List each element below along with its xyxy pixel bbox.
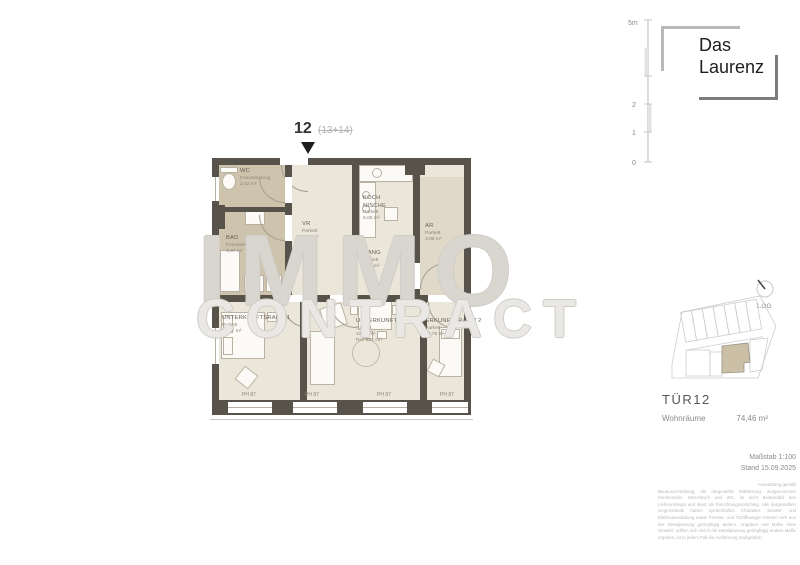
scale-bar: 5m 2 1 0 (624, 12, 658, 170)
room-name: BAD (226, 235, 239, 241)
window (293, 402, 337, 413)
scale-5m-label: 5m (628, 20, 638, 27)
floorplan-page: 12 (13+14) (0, 0, 800, 565)
room-area: 6,05 m² (363, 216, 397, 222)
door-opening (413, 263, 420, 289)
door-opening (428, 295, 454, 302)
highlighted-unit (722, 343, 750, 373)
logo-line1: Das (699, 34, 764, 56)
room-area: 3,08 m² (363, 264, 381, 270)
room-floor: Feinsteinzeug (240, 176, 270, 182)
wall (464, 158, 471, 415)
room-label-unterkunftsraum2: UNTERKUNFTSRAUM 2 Parkett 10,75 m² (413, 318, 481, 338)
wall (212, 158, 280, 165)
door-opening (330, 295, 356, 302)
window (212, 177, 219, 201)
window-sill-line (210, 419, 473, 420)
parapet-label: PH 87 (440, 392, 454, 398)
unit-area-row: Wohnräume 74,46 m² (662, 414, 768, 423)
room-label-bad: BAD Feinsteinzeug 4,37 m² (226, 235, 256, 255)
bathtub (220, 250, 240, 292)
room-label-vr: VR Parkett 5,47 m² (302, 221, 319, 241)
room-name: AR (425, 223, 433, 229)
room-floor: Feinsteinzeug (226, 243, 256, 249)
washbasin (244, 275, 264, 292)
room-area: 2,52 m² (240, 182, 270, 188)
pillow (223, 337, 233, 355)
area-label: Wohnräume (662, 414, 705, 423)
wall (308, 158, 471, 165)
room-label-wc: WC Feinsteinzeug 2,52 m² (240, 168, 270, 188)
room-area: 10,75 m² (413, 332, 481, 338)
room-area: 5,47 m² (302, 235, 319, 241)
das-laurenz-logo: Das Laurenz (655, 20, 781, 102)
plan-meta: Maßstab 1:100 Stand 15.09.2025 (640, 452, 796, 474)
window (432, 402, 468, 413)
window (228, 402, 272, 413)
door-opening (285, 215, 292, 241)
wall (219, 207, 285, 212)
floor-plan: WC Feinsteinzeug 2,52 m² BAD Feinsteinze… (212, 155, 471, 423)
room-name: WC (240, 168, 250, 174)
parapet-label: PH 87 (377, 392, 391, 398)
wall (420, 302, 427, 400)
toilet-icon (222, 173, 236, 190)
date-note: Stand 15.09.2025 (640, 463, 796, 474)
scale-0-label: 0 (632, 160, 636, 167)
room-area: 4,37 m² (226, 249, 256, 255)
kitchen-sink (372, 168, 382, 178)
logo-text: Das Laurenz (699, 34, 764, 78)
room-name: VR (302, 221, 310, 227)
room-label-unterkunftsraum1: UNTERKUNFTSRAUM 1 Parkett 15,67 m² (222, 315, 290, 335)
parapet-label: PH 87 (242, 392, 256, 398)
disclaimer-intro: Ausstattung gemäß (658, 482, 796, 489)
chair (392, 305, 400, 315)
wall (352, 165, 359, 250)
room-area: 3,89 m² (425, 237, 442, 243)
scale-1-label: 1 (632, 130, 636, 137)
room-name: UNTERKUNFTSRAUM 2 (413, 318, 481, 324)
room-floor: Parkett (425, 231, 442, 237)
room-label-ar: AR Parkett 3,89 m² (425, 223, 442, 243)
disclaimer-body: Bauausschreibung; die dargestellte Möbli… (658, 489, 796, 542)
parapet-label: PH 87 (305, 392, 319, 398)
room-name: UNTERKUNFTSRAUM 1 (222, 315, 290, 321)
window (212, 328, 219, 364)
room-name: GANG (363, 250, 381, 256)
entrance-arrow-icon (301, 142, 315, 154)
room-label-gang: GANG Parkett 3,08 m² (363, 250, 381, 270)
window (363, 402, 407, 413)
chimney-block (405, 165, 425, 175)
merged-units-strikethrough: (13+14) (318, 125, 353, 136)
room-floor: Parkett (302, 229, 319, 235)
area-value: 74,46 m² (736, 414, 768, 423)
disclaimer: Ausstattung gemäß Bauausschreibung; die … (658, 482, 796, 541)
room-name: KOCH NISCHE (363, 195, 386, 209)
door-opening (285, 177, 292, 203)
room-label-koch: KOCH NISCHE Parkett 6,05 m² (363, 195, 397, 223)
unit-number: 12 (294, 120, 312, 138)
washing-machine (266, 275, 282, 292)
scale-note: Maßstab 1:100 (640, 452, 796, 463)
room-area: 15,67 m² (222, 329, 290, 335)
window (212, 250, 219, 283)
room-floor: Parkett (363, 258, 381, 264)
door-opening (282, 295, 308, 302)
sofa (310, 331, 335, 385)
scale-2-label: 2 (632, 102, 636, 109)
site-plan: 1.OG (660, 274, 788, 390)
wall (300, 302, 307, 400)
logo-line2: Laurenz (699, 56, 764, 78)
unit-title: TÜR12 (662, 392, 711, 407)
room-height: RH: 321 cm (356, 338, 424, 344)
